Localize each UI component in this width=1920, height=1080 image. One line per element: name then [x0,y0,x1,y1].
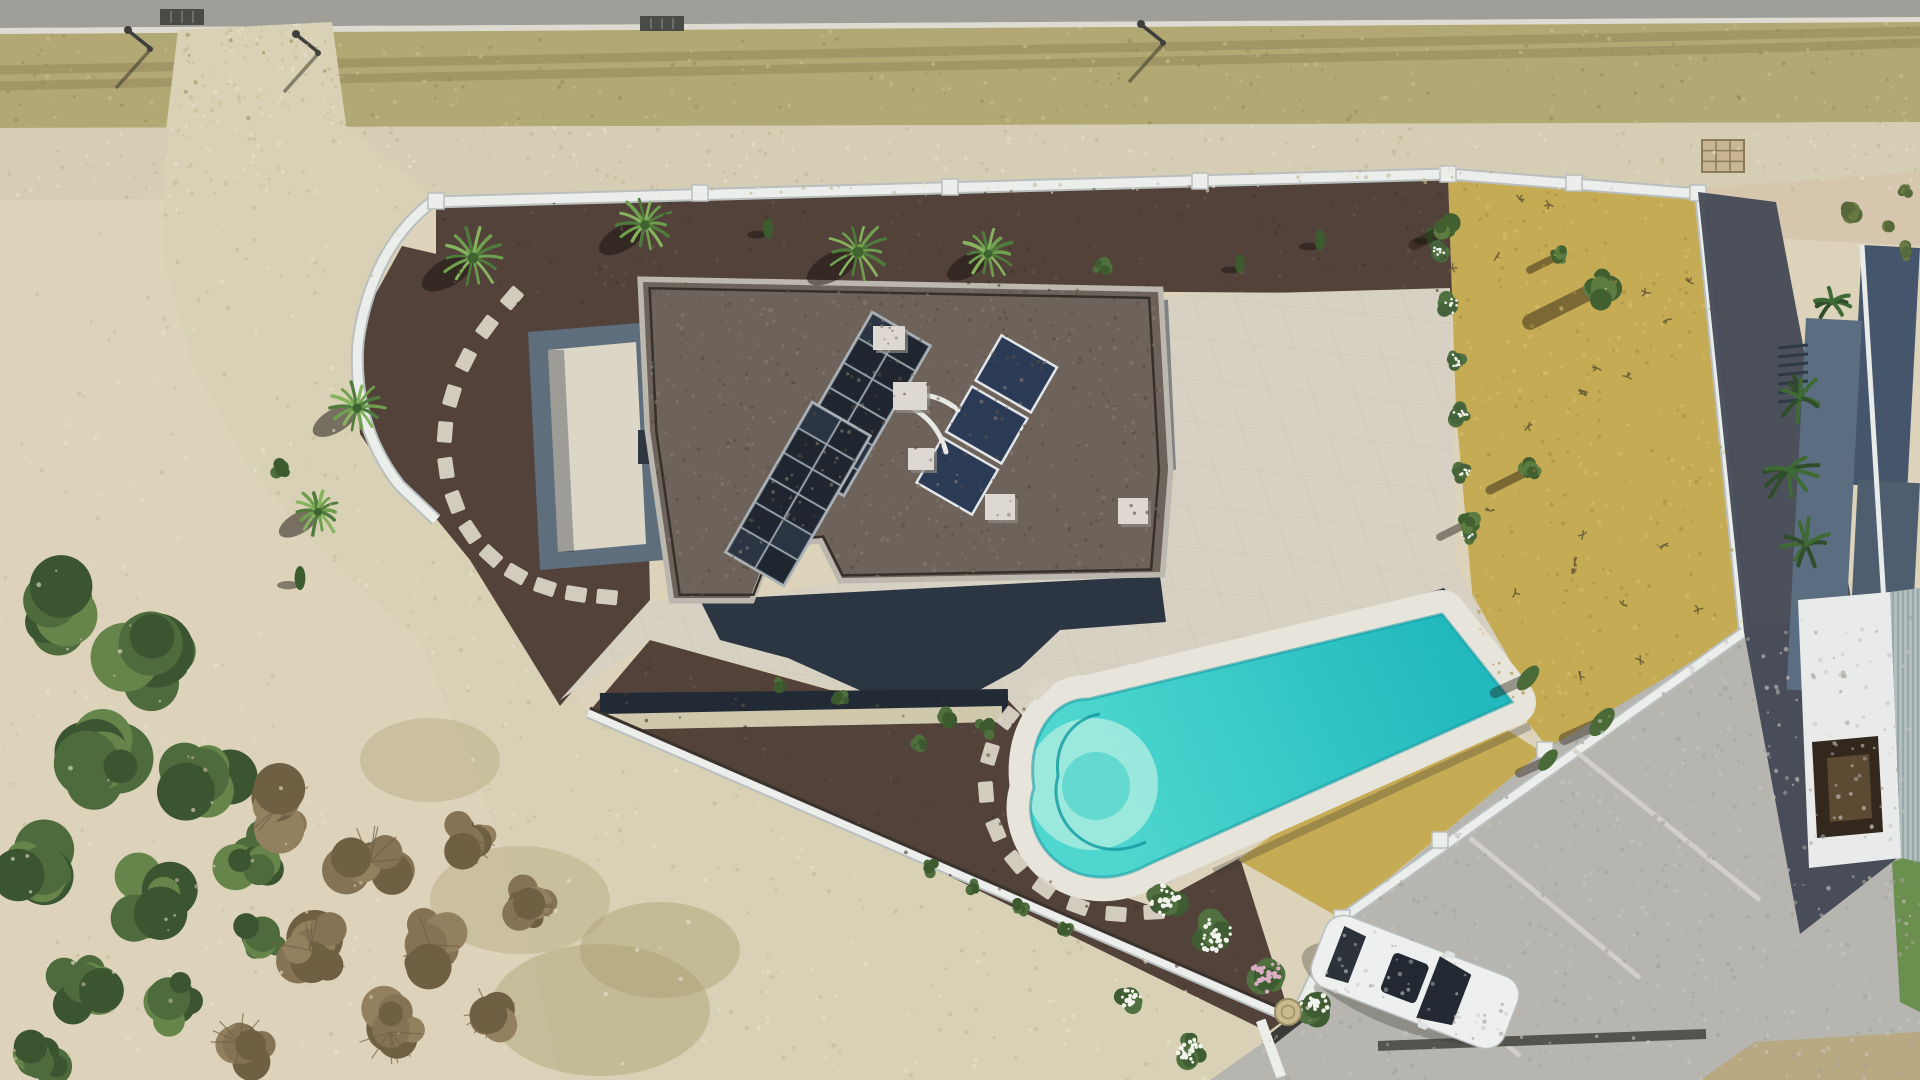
texture-dot [668,538,671,541]
texture-dot [1654,1004,1656,1006]
texture-dot [1781,976,1783,978]
texture-dot [1196,997,1199,1000]
texture-dot [902,296,905,299]
texture-dot [204,37,206,39]
texture-dot [1147,349,1150,352]
texture-dot [1695,961,1698,964]
texture-dot [647,667,650,670]
stepping-stone [596,589,618,606]
texture-dot [1352,214,1356,218]
texture-dot [387,145,390,148]
texture-dot [760,991,763,994]
texture-dot [1402,285,1405,288]
texture-dot [1756,134,1759,137]
texture-dot [984,192,986,194]
texture-dot [1429,207,1431,209]
texture-dot [1736,870,1739,873]
texture-dot [734,516,738,520]
texture-dot [302,32,304,34]
texture-dot [544,171,547,174]
texture-dot [707,163,711,167]
texture-dot [186,47,189,50]
texture-dot [1373,198,1376,201]
texture-dot [1604,870,1608,874]
texture-dot [943,53,946,56]
texture-dot [340,76,342,78]
texture-dot [989,299,992,302]
texture-dot [454,281,456,283]
texture-dot [702,1038,706,1042]
texture-dot [981,308,984,311]
texture-dot [1706,155,1708,157]
texture-dot [1895,1039,1897,1041]
texture-dot [1845,720,1850,725]
texture-dot [393,100,397,104]
texture-dot [671,89,674,92]
flower [1466,471,1469,474]
small-shrub-blob [942,712,954,724]
texture-dot [1369,984,1373,988]
texture-dot [915,1062,918,1065]
texture-dot [1712,151,1716,155]
texture-dot [1793,901,1797,905]
texture-dot [1483,1014,1486,1017]
texture-dot [1877,920,1879,922]
texture-dot [572,154,576,158]
texture-dot [1546,191,1549,194]
texture-dot [967,281,971,285]
texture-dot [1085,444,1088,447]
texture-dot [1776,113,1780,117]
wall-pillar [1192,173,1208,189]
texture-dot [1588,898,1593,903]
texture-dot [560,80,564,84]
texture-dot [968,907,972,911]
texture-dot [782,519,784,521]
texture-dot [782,838,785,841]
texture-dot [940,505,944,509]
texture-dot [1852,875,1855,878]
texture-dot [219,105,222,108]
texture-dot [1011,723,1014,726]
texture-dot [159,700,161,702]
texture-dot [376,115,380,119]
texture-dot [1641,870,1644,873]
texture-dot [1679,853,1682,856]
texture-dot [340,121,343,124]
texture-dot [1455,1033,1457,1035]
texture-dot [357,146,359,148]
texture-dot [1071,311,1074,314]
texture-dot [323,473,327,477]
texture-dot [1356,983,1359,986]
texture-dot [970,804,973,807]
olive-tree-blob [1559,247,1566,254]
texture-dot [1554,933,1558,937]
texture-dot [972,528,974,530]
flower [1193,1039,1196,1042]
texture-dot [281,170,284,173]
texture-dot [38,54,40,56]
texture-dot [1687,1060,1692,1065]
texture-dot [1469,347,1472,350]
texture-dot [1021,445,1023,447]
texture-dot [1730,548,1733,551]
texture-dot [759,150,762,153]
texture-dot [667,293,669,295]
palm-crown [984,250,993,259]
texture-dot [1116,135,1118,137]
texture-dot [1427,1008,1430,1011]
texture-dot [917,233,921,237]
texture-dot [1664,847,1667,850]
texture-dot [1128,149,1132,153]
texture-dot [1785,776,1789,780]
texture-dot [1571,1057,1573,1059]
texture-dot [1552,661,1555,664]
flower [1325,1005,1330,1010]
texture-dot [1642,916,1644,918]
texture-dot [408,165,410,167]
texture-dot [243,56,246,59]
texture-dot [1652,282,1656,286]
texture-dot [1621,910,1624,913]
texture-dot [417,578,419,580]
texture-dot [750,519,754,523]
texture-dot [1582,34,1585,37]
texture-dot [951,159,953,161]
texture-dot [1564,692,1567,695]
texture-dot [860,520,863,523]
texture-dot [539,66,542,69]
texture-dot [469,572,474,577]
texture-dot [1131,421,1135,425]
texture-dot [1582,974,1586,978]
texture-dot [816,442,819,445]
texture-dot [1795,736,1797,738]
texture-dot [604,992,608,996]
texture-dot [94,177,96,179]
texture-dot [920,315,923,318]
texture-dot [1099,159,1101,161]
texture-dot [848,572,850,574]
texture-dot [783,137,785,139]
texture-dot [1526,68,1529,71]
texture-dot [1067,339,1070,342]
texture-dot [692,394,696,398]
texture-dot [306,189,310,193]
texture-dot [222,223,225,226]
texture-dot [154,381,156,383]
texture-dot [454,88,457,91]
texture-dot [363,131,367,135]
texture-dot [1512,369,1516,373]
texture-dot [750,298,754,302]
texture-dot [1059,341,1061,343]
texture-dot [1554,970,1558,974]
texture-dot [1595,1035,1599,1039]
texture-dot [1102,392,1105,395]
texture-dot [1776,688,1780,692]
texture-dot [754,175,758,179]
texture-dot [1656,955,1659,958]
texture-dot [1620,847,1624,851]
texture-dot [843,504,845,506]
texture-dot [1156,183,1159,186]
texture-dot [1524,44,1528,48]
texture-dot [691,595,693,597]
flower [1450,298,1453,301]
texture-dot [697,367,699,369]
texture-dot [99,232,102,235]
texture-dot [1828,735,1830,737]
texture-dot [1691,991,1694,994]
texture-dot [81,829,85,833]
texture-dot [1498,55,1500,57]
banana-leaf [1766,468,1788,470]
texture-dot [749,356,752,359]
texture-dot [1870,824,1874,828]
flower [1195,1046,1198,1049]
texture-dot [304,73,307,76]
texture-dot [1144,960,1148,964]
texture-dot [1316,1033,1318,1035]
texture-dot [1488,823,1491,826]
palm-crown [314,508,322,516]
texture-dot [1208,137,1212,141]
texture-dot [1738,946,1743,951]
texture-dot [1787,868,1790,871]
texture-dot [175,208,178,211]
texture-dot [992,815,995,818]
texture-dot [740,403,743,406]
texture-dot [853,876,856,879]
texture-dot [1548,933,1552,937]
texture-dot [1272,216,1276,220]
texture-dot [645,116,648,119]
texture-dot [1646,361,1650,365]
texture-dot [228,83,231,86]
texture-dot [709,477,711,479]
texture-dot [1355,206,1358,209]
texture-dot [1097,1043,1100,1046]
texture-dot [1451,176,1454,179]
texture-dot [1673,670,1677,674]
texture-dot [314,381,317,384]
texture-dot [633,257,635,259]
texture-dot [1075,292,1078,295]
texture-dot [259,106,262,109]
texture-dot [651,293,654,296]
texture-dot [1319,135,1322,138]
texture-dot [29,188,33,192]
texture-dot [81,982,85,986]
texture-dot [1728,888,1731,891]
flower [1132,995,1136,999]
texture-dot [1888,154,1891,157]
texture-dot [653,115,656,118]
texture-dot [1568,779,1572,783]
texture-dot [991,307,995,311]
texture-dot [1074,416,1076,418]
dry-brush-blob [444,833,481,870]
texture-dot [192,62,194,64]
texture-dot [1844,167,1847,170]
texture-dot [1313,62,1317,66]
texture-dot [584,208,587,211]
flower [1201,943,1204,946]
texture-dot [812,872,816,876]
texture-dot [687,578,689,580]
texture-dot [1476,856,1479,859]
texture-dot [359,881,363,885]
texture-dot [1012,910,1014,912]
texture-dot [885,475,888,478]
roof-skylight-box [873,326,905,350]
texture-dot [140,498,145,503]
texture-dot [96,517,100,521]
texture-dot [1034,966,1039,971]
texture-dot [1592,918,1595,921]
texture-dot [804,396,807,399]
texture-dot [948,87,951,90]
texture-dot [1396,53,1398,55]
texture-dot [1821,179,1823,181]
texture-dot [1845,1063,1848,1066]
texture-dot [447,77,451,81]
texture-dot [1203,196,1206,199]
texture-dot [625,272,628,275]
texture-dot [691,547,693,549]
texture-dot [1561,848,1564,851]
texture-dot [86,76,89,79]
texture-dot [618,96,622,100]
texture-dot [973,1058,977,1062]
texture-dot [221,664,224,667]
texture-dot [606,174,610,178]
texture-dot [1668,818,1670,820]
texture-dot [738,164,742,168]
texture-dot [118,649,123,654]
texture-dot [1826,1026,1831,1031]
texture-dot [489,156,491,158]
texture-dot [716,359,719,362]
texture-dot [294,56,298,60]
texture-dot [1604,242,1607,245]
texture-dot [1541,690,1544,693]
texture-dot [733,321,735,323]
texture-dot [1146,283,1149,286]
texture-dot [1390,926,1394,930]
texture-dot [1713,614,1716,617]
texture-dot [675,498,678,501]
texture-dot [1050,408,1053,411]
texture-dot [1486,205,1490,209]
texture-dot [901,523,905,527]
texture-dot [1454,322,1457,325]
texture-dot [757,187,760,190]
texture-dot [1002,538,1005,541]
small-shrub-blob [979,722,987,730]
texture-dot [725,574,729,578]
texture-dot [1698,476,1701,479]
texture-dot [1312,145,1315,148]
texture-dot [1563,1003,1566,1006]
texture-dot [766,65,770,69]
flower [1149,901,1154,906]
texture-dot [879,373,881,375]
texture-dot [999,822,1002,825]
texture-dot [281,67,285,71]
texture-dot [1362,263,1366,267]
texture-dot [663,213,666,216]
texture-dot [227,35,230,38]
texture-dot [1590,667,1594,671]
texture-dot [1241,290,1243,292]
texture-dot [56,185,59,188]
texture-dot [887,142,890,145]
flower [1158,911,1162,915]
flower [1324,999,1328,1003]
flower [1164,899,1168,903]
texture-dot [307,463,309,465]
texture-dot [1645,653,1649,657]
texture-dot [1582,353,1586,357]
texture-dot [1397,141,1400,144]
texture-dot [893,909,898,914]
texture-dot [1348,1071,1353,1076]
texture-dot [331,106,334,109]
texture-dot [912,49,915,52]
texture-dot [852,459,856,463]
texture-dot [1885,882,1887,884]
texture-dot [1519,492,1521,494]
texture-dot [364,583,369,588]
texture-dot [1684,291,1688,295]
roof-skylight-box [1118,498,1148,524]
texture-dot [1632,1063,1634,1065]
texture-dot [30,87,34,91]
texture-dot [1566,410,1569,413]
texture-dot [1253,194,1256,197]
texture-dot [1598,628,1602,632]
texture-dot [308,181,310,183]
texture-dot [1802,884,1804,886]
texture-dot [605,265,608,268]
texture-dot [251,859,255,863]
texture-dot [867,229,869,231]
texture-dot [1659,203,1663,207]
texture-dot [1577,414,1579,416]
texture-dot [1517,601,1520,604]
texture-dot [1898,952,1902,956]
texture-dot [1056,563,1059,566]
texture-dot [1635,62,1639,66]
texture-dot [831,387,833,389]
olive-tree-blob [1465,517,1475,527]
texture-dot [1610,51,1614,55]
flower [1466,413,1469,416]
texture-dot [1603,257,1605,259]
texture-dot [1608,715,1610,717]
texture-dot [718,285,720,287]
texture-dot [1134,437,1137,440]
texture-dot [1334,77,1336,79]
texture-dot [1325,971,1328,974]
texture-dot [821,349,823,351]
texture-dot [1034,336,1037,339]
texture-dot [87,937,90,940]
